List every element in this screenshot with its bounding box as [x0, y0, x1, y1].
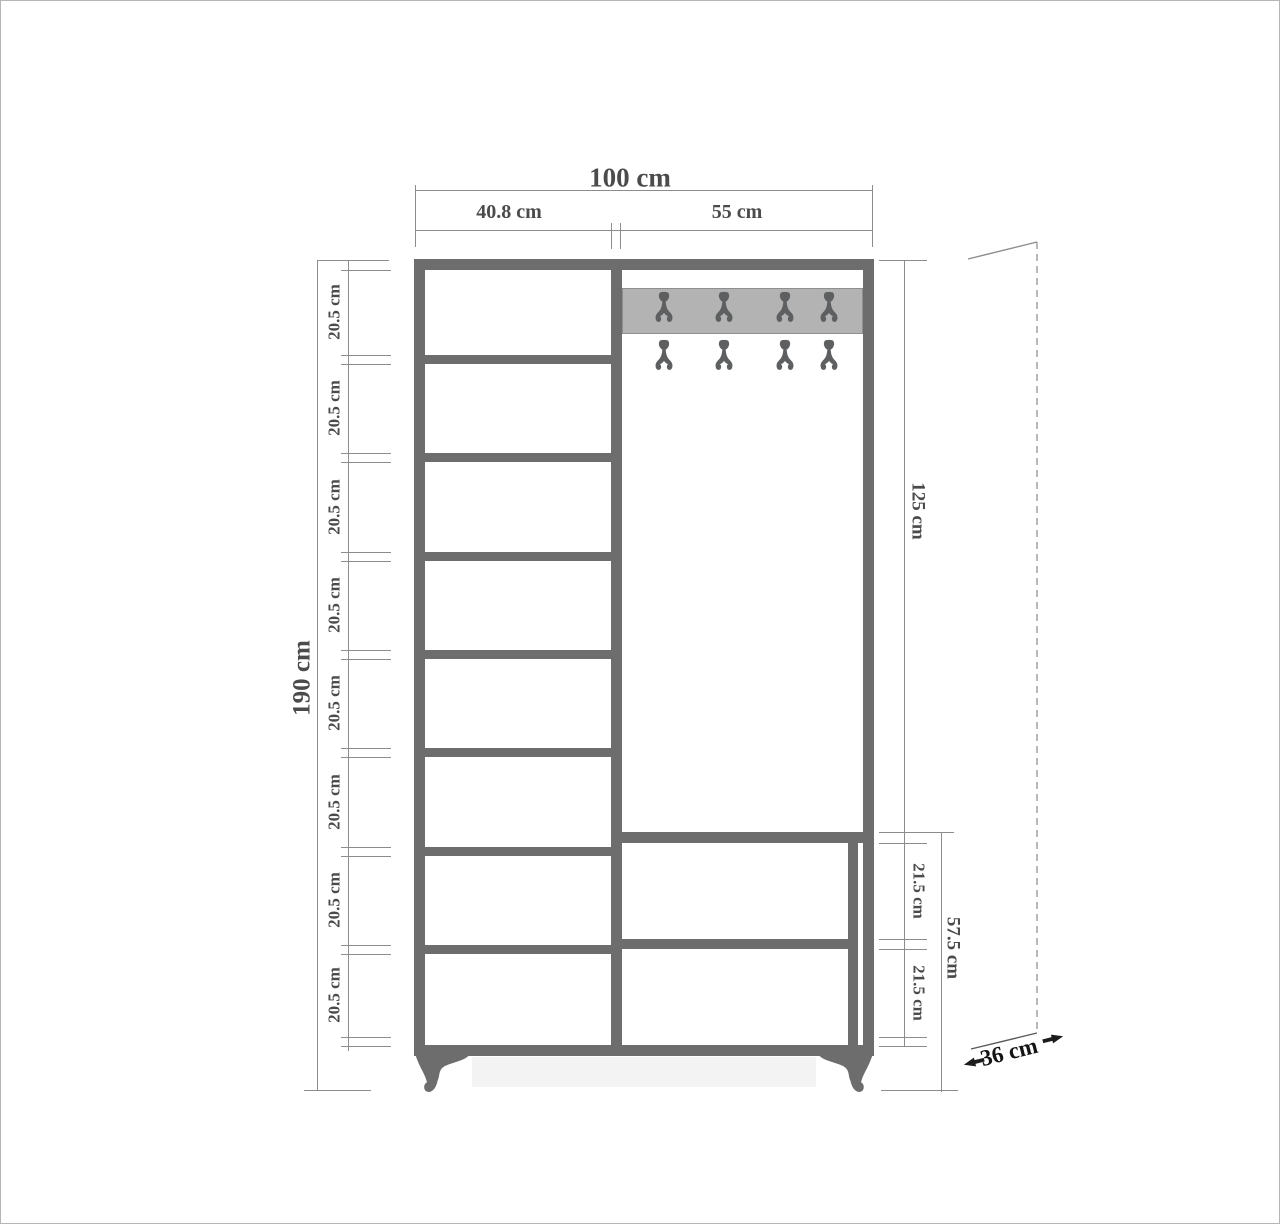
- depth-arrow-left-icon: [963, 1055, 986, 1069]
- coat-hook-icon: [656, 292, 673, 322]
- cabinet-foot-left: [414, 1051, 472, 1092]
- coat-hook-icon: [777, 292, 794, 322]
- dim-line-depth: [971, 1033, 1037, 1049]
- coat-hook-icon: [821, 292, 838, 322]
- coat-hook-icon: [777, 340, 794, 370]
- blueprint-canvas: 100 cm 40.8 cm 55 cm 190 cm 20.5 cm 20.5…: [0, 0, 1280, 1224]
- coat-hook-icon: [821, 340, 838, 370]
- coat-hook-icon: [656, 340, 673, 370]
- drawing-overlay: [1, 1, 1280, 1224]
- depth-perspective-line: [968, 242, 1037, 259]
- coat-hook-icon: [716, 292, 733, 322]
- depth-arrow-right-icon: [1042, 1032, 1065, 1046]
- cabinet-foot-right: [816, 1051, 874, 1092]
- coat-hook-icon: [716, 340, 733, 370]
